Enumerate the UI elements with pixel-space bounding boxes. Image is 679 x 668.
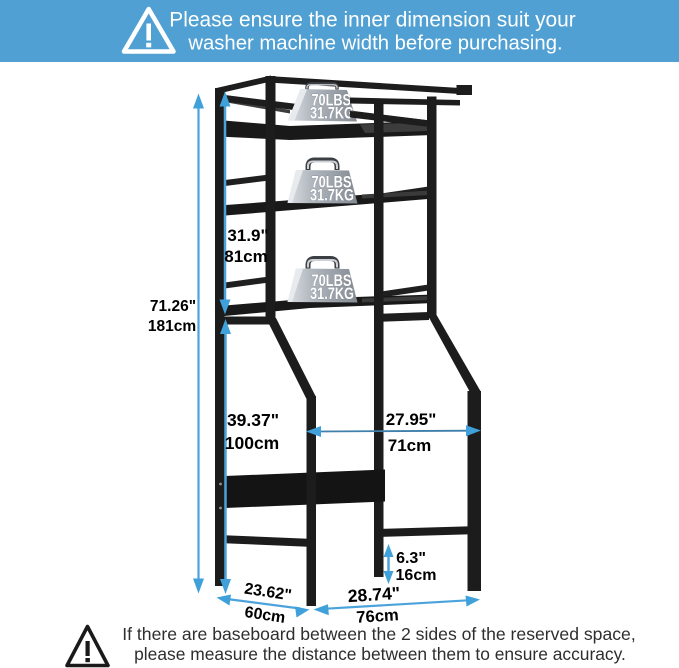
svg-text:28.74": 28.74" <box>347 583 400 606</box>
svg-text:71cm: 71cm <box>388 436 431 455</box>
svg-text:16cm: 16cm <box>396 567 437 584</box>
svg-text:31.9": 31.9" <box>227 226 268 245</box>
svg-text:31.7KG: 31.7KG <box>310 187 354 205</box>
svg-text:Please ensure the inner dimens: Please ensure the inner dimension suit y… <box>169 9 575 32</box>
svg-text:71.26": 71.26" <box>150 298 196 315</box>
svg-text:39.37": 39.37" <box>227 410 279 430</box>
svg-text:31.7KG: 31.7KG <box>310 105 354 123</box>
svg-text:27.95": 27.95" <box>386 410 437 429</box>
svg-text:If there are baseboard between: If there are baseboard between the 2 sid… <box>122 624 635 644</box>
svg-text:washer machine width before pu: washer machine width before purchasing. <box>187 33 562 55</box>
svg-text:81cm: 81cm <box>224 247 267 266</box>
svg-text:please measure the distance be: please measure the distance between them… <box>134 644 626 664</box>
svg-text:6.3": 6.3" <box>396 550 426 567</box>
svg-text:31.7KG: 31.7KG <box>310 285 354 303</box>
svg-text:100cm: 100cm <box>225 433 280 453</box>
svg-text:181cm: 181cm <box>148 318 196 335</box>
